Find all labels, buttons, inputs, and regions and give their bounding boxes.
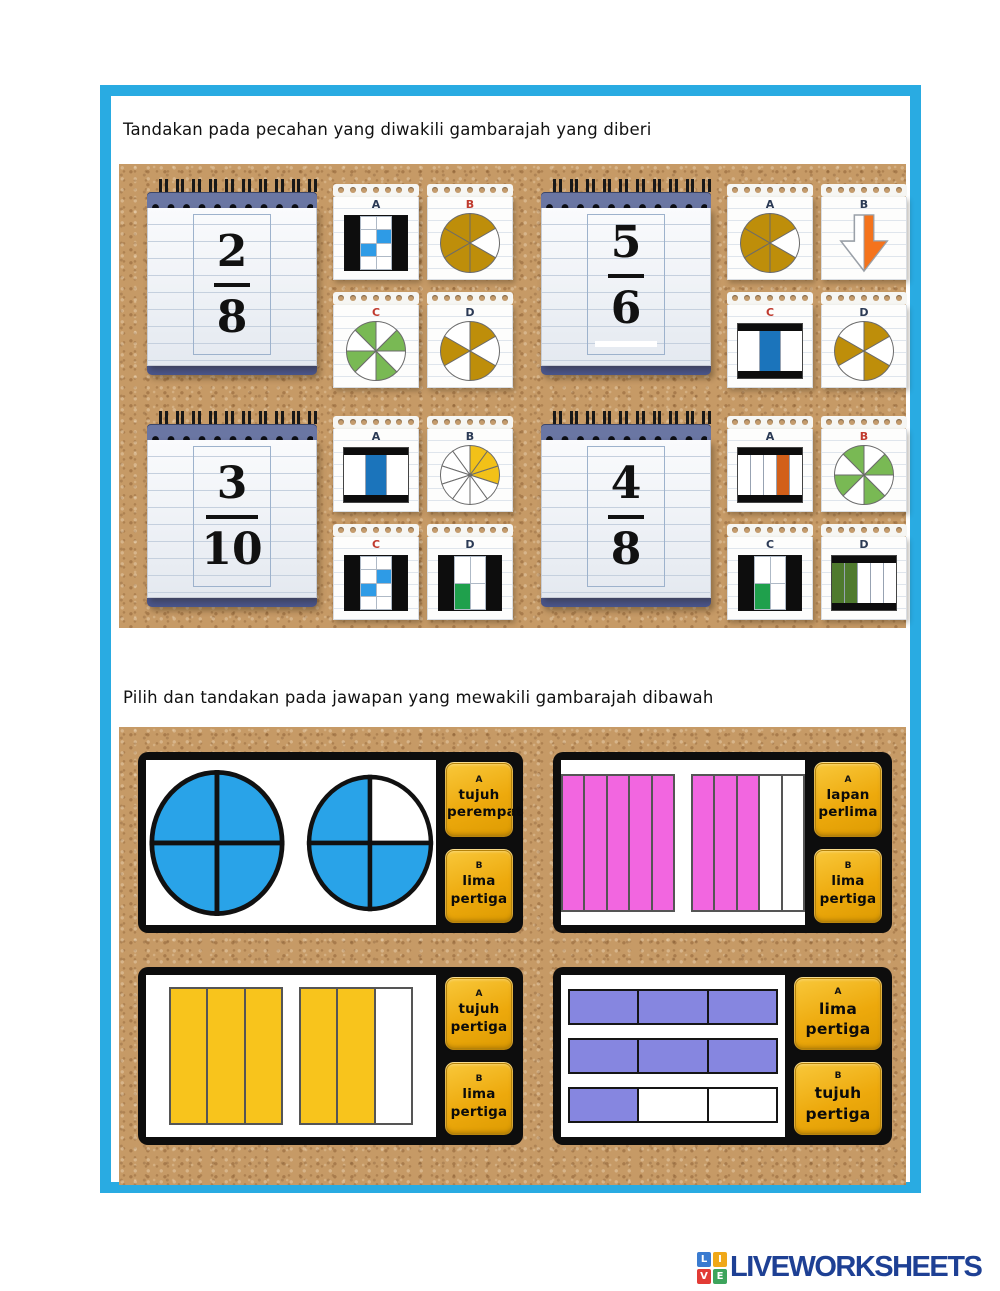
panel-1: A tujuh perempatB lima pertiga: [138, 752, 523, 933]
spiral-binding: [541, 410, 711, 424]
fraction-diagram: [334, 320, 418, 382]
option-card-D[interactable]: D: [821, 524, 907, 620]
option-letter: A: [728, 198, 812, 212]
option-card-body: D: [427, 305, 513, 388]
grid-diagram: [344, 215, 408, 271]
torn-edge-holes: [427, 292, 513, 305]
answer-letter: B: [796, 1071, 880, 1081]
torn-edge-holes: [427, 184, 513, 197]
strip-diagram: [561, 774, 675, 912]
torn-edge-holes: [727, 416, 813, 429]
question-1: 2 8 A B C D: [119, 164, 513, 396]
fraction-diagram: [334, 444, 418, 506]
option-card-body: A: [727, 197, 813, 280]
fraction-diagram: [428, 552, 512, 614]
fraction-denominator: 8: [611, 529, 642, 571]
option-card-body: C: [727, 305, 813, 388]
strip-diagram: [691, 774, 805, 912]
fraction-diagram: [428, 320, 512, 382]
corkboard-section2: A tujuh perempatB lima pertiga A lapan p…: [119, 727, 906, 1185]
option-letter: D: [428, 538, 512, 552]
option-letter: C: [334, 538, 418, 552]
fraction-diagram: [728, 552, 812, 614]
answer-button-A[interactable]: A lapan perlima: [812, 760, 884, 839]
answer-word: lima: [447, 1086, 511, 1104]
option-card-A[interactable]: A: [333, 416, 419, 512]
option-card-C[interactable]: C: [333, 524, 419, 620]
section2-title: Pilih dan tandakan pada jawapan yang mew…: [123, 688, 714, 707]
option-card-A[interactable]: A: [333, 184, 419, 280]
fraction-notepad: 2 8: [147, 178, 317, 396]
option-letter: C: [334, 306, 418, 320]
option-card-body: B: [821, 197, 907, 280]
answer-letter: B: [816, 861, 880, 871]
fraction-box: 3 10: [193, 446, 271, 587]
notepad-header: [147, 192, 317, 208]
answer-column: A tujuh pertigaB lima pertiga: [443, 975, 515, 1137]
notepad-paper: 2 8: [147, 208, 317, 366]
fraction-diagram: [428, 444, 512, 506]
option-letter: A: [334, 430, 418, 444]
fraction-numerator: 4: [611, 463, 642, 505]
option-letter: A: [334, 198, 418, 212]
panel-4: A lima pertigaB tujuh pertiga: [553, 967, 892, 1145]
diagram-area: [146, 760, 436, 925]
torn-edge-holes: [727, 524, 813, 537]
fraction-denominator: 10: [201, 529, 262, 571]
fraction-box: 2 8: [193, 214, 271, 355]
question-4: 4 8 A B C D: [513, 396, 907, 628]
answer-column: A lapan perlimaB lima pertiga: [812, 760, 884, 925]
torn-edge-holes: [821, 524, 907, 537]
answer-word: pertiga: [447, 891, 511, 909]
option-card-B[interactable]: B: [427, 184, 513, 280]
fraction-box: 4 8: [587, 446, 665, 587]
liveworksheets-logo: LIVE LIVEWORKSHEETS: [697, 1251, 981, 1284]
option-card-body: A: [333, 429, 419, 512]
fraction-box: 5 6: [587, 214, 665, 355]
option-letter: C: [728, 306, 812, 320]
answer-letter: A: [447, 989, 511, 999]
fraction-diagram: [822, 212, 906, 274]
answer-word: pertiga: [796, 1104, 880, 1124]
option-letter: B: [428, 198, 512, 212]
torn-edge-holes: [727, 292, 813, 305]
option-card-body: B: [427, 429, 513, 512]
fraction-diagram: [728, 444, 812, 506]
notepad-header: [541, 192, 711, 208]
option-card-B[interactable]: B: [427, 416, 513, 512]
pie-diagram: [439, 444, 501, 506]
fraction-numerator: 2: [217, 231, 248, 273]
answer-letter: A: [447, 775, 511, 785]
torn-edge-holes: [821, 184, 907, 197]
option-card-C[interactable]: C: [727, 292, 813, 388]
logo-tile-e: E: [713, 1269, 727, 1284]
answer-button-B[interactable]: B lima pertiga: [812, 847, 884, 926]
option-card-A[interactable]: A: [727, 184, 813, 280]
option-letter: B: [822, 430, 906, 444]
answer-letter: A: [796, 987, 880, 997]
option-card-B[interactable]: B: [821, 416, 907, 512]
notepad-footer: [147, 598, 317, 607]
option-letter: D: [428, 306, 512, 320]
answer-word: perlima: [816, 804, 880, 822]
torn-edge-holes: [333, 524, 419, 537]
pie-diagram: [833, 444, 895, 506]
option-letter: A: [728, 430, 812, 444]
option-card-body: A: [333, 197, 419, 280]
notepad-footer: [541, 598, 711, 607]
options-grid: A B C D: [333, 416, 513, 628]
option-letter: B: [822, 198, 906, 212]
torn-edge-holes: [333, 184, 419, 197]
bar-row: [568, 1038, 778, 1074]
option-card-body: D: [821, 305, 907, 388]
notepad-paper: 5 6: [541, 208, 711, 366]
options-grid: A B C D: [727, 416, 907, 628]
torn-edge-holes: [333, 292, 419, 305]
fraction-diagram: [334, 552, 418, 614]
answer-button-B[interactable]: B lima pertiga: [443, 847, 515, 926]
pie-diagram: [345, 320, 407, 382]
notepad-footer: [147, 366, 317, 375]
notepad-paper: 4 8: [541, 440, 711, 598]
notepad-header: [147, 424, 317, 440]
bar-diagram: [737, 447, 803, 503]
answer-column: A tujuh perempatB lima pertiga: [443, 760, 515, 925]
answer-word: tujuh: [447, 787, 511, 805]
option-card-body: C: [727, 537, 813, 620]
answer-letter: A: [816, 775, 880, 785]
diagram-area: [146, 975, 436, 1137]
bar-diagram: [343, 447, 409, 503]
option-card-B[interactable]: B: [821, 184, 907, 280]
torn-edge-holes: [427, 524, 513, 537]
answer-word: lima: [447, 873, 511, 891]
answer-word: tujuh: [447, 1001, 511, 1019]
option-card-body: C: [333, 537, 419, 620]
option-letter: D: [822, 306, 906, 320]
fraction-bar: [206, 515, 258, 519]
fraction-diagram: [728, 212, 812, 274]
option-card-D[interactable]: D: [821, 292, 907, 388]
logo-tile-i: I: [713, 1252, 727, 1267]
option-card-A[interactable]: A: [727, 416, 813, 512]
option-card-body: C: [333, 305, 419, 388]
liveworksheets-logo-icon: LIVE: [697, 1252, 727, 1284]
answer-button-B[interactable]: B tujuh pertiga: [792, 1060, 884, 1137]
answer-button-A[interactable]: A tujuh perempat: [443, 760, 515, 839]
answer-button-A[interactable]: A lima pertiga: [792, 975, 884, 1052]
fraction-diagram: [428, 212, 512, 274]
answer-word: perempat: [447, 804, 511, 822]
option-card-C[interactable]: C: [333, 292, 419, 388]
option-card-body: B: [821, 429, 907, 512]
brand-text: LIVEWORKSHEETS: [730, 1251, 981, 1284]
corkboard-section1: 2 8 A B C D: [119, 164, 906, 628]
notepad-paper: 3 10: [147, 440, 317, 598]
option-letter: D: [822, 538, 906, 552]
diagram-area: [561, 975, 785, 1137]
options-grid: A B C D: [727, 184, 907, 396]
fraction-bar: [214, 283, 250, 287]
answer-word: pertiga: [447, 1104, 511, 1122]
fraction-notepad: 5 6: [541, 178, 711, 396]
fraction-diagram: [822, 320, 906, 382]
fraction-bar: [608, 515, 644, 519]
answer-word: lapan: [816, 787, 880, 805]
torn-edge-holes: [821, 292, 907, 305]
fraction-diagram: [822, 444, 906, 506]
answer-word: tujuh: [796, 1083, 880, 1103]
strip-diagram: [299, 987, 413, 1125]
grid-diagram: [438, 555, 502, 611]
spiral-binding: [147, 178, 317, 192]
torn-edge-holes: [821, 416, 907, 429]
fraction-diagram: [728, 320, 812, 382]
option-card-body: D: [427, 537, 513, 620]
arrow-diagram: [836, 212, 892, 274]
question-2: 5 6 A B C: [513, 164, 907, 396]
option-card-body: B: [427, 197, 513, 280]
option-card-C[interactable]: C: [727, 524, 813, 620]
option-card-body: D: [821, 537, 907, 620]
fraction-denominator: 8: [217, 297, 248, 339]
pie-diagram: [833, 320, 895, 382]
answer-column: A lima pertigaB tujuh pertiga: [792, 975, 884, 1137]
fraction-notepad: 3 10: [147, 410, 317, 628]
bar-row: [568, 1087, 778, 1123]
answer-word: pertiga: [796, 1019, 880, 1039]
quartered-circle: [304, 769, 436, 917]
strip-diagram: [169, 987, 283, 1125]
bar-row: [568, 989, 778, 1025]
answer-word: lima: [796, 999, 880, 1019]
torn-edge-holes: [727, 184, 813, 197]
spiral-binding: [147, 410, 317, 424]
question-3: 3 10 A B C D: [119, 396, 513, 628]
fraction-bar: [608, 274, 644, 278]
fraction-denominator: 6: [611, 288, 642, 330]
fraction-diagram: [334, 212, 418, 274]
fraction-numerator: 3: [217, 463, 248, 505]
answer-word: pertiga: [816, 891, 880, 909]
answer-letter: B: [447, 861, 511, 871]
answer-word: lima: [816, 873, 880, 891]
logo-tile-l: L: [697, 1252, 711, 1267]
bar-diagram: [737, 323, 803, 379]
pie-diagram: [739, 212, 801, 274]
hbar-diagram: [568, 989, 778, 1123]
bar-diagram: [831, 555, 897, 611]
answer-button-B[interactable]: B lima pertiga: [443, 1060, 515, 1137]
quartered-circle: [146, 767, 288, 919]
logo-tile-v: V: [697, 1269, 711, 1284]
answer-underline: [595, 341, 657, 347]
option-letter: C: [728, 538, 812, 552]
torn-edge-holes: [427, 416, 513, 429]
fraction-diagram: [822, 552, 906, 614]
pie-diagram: [439, 320, 501, 382]
answer-word: pertiga: [447, 1019, 511, 1037]
grid-diagram: [738, 555, 802, 611]
option-letter: B: [428, 430, 512, 444]
notepad-header: [541, 424, 711, 440]
panel-3: A tujuh pertigaB lima pertiga: [138, 967, 523, 1145]
section1-title: Tandakan pada pecahan yang diwakili gamb…: [123, 120, 652, 139]
torn-edge-holes: [333, 416, 419, 429]
option-card-body: A: [727, 429, 813, 512]
diagram-area: [561, 760, 805, 925]
notepad-footer: [541, 366, 711, 375]
option-card-D[interactable]: D: [427, 524, 513, 620]
grid-diagram: [344, 555, 408, 611]
fraction-numerator: 5: [611, 222, 642, 264]
pie-diagram: [439, 212, 501, 274]
answer-button-A[interactable]: A tujuh pertiga: [443, 975, 515, 1052]
panel-2: A lapan perlimaB lima pertiga: [553, 752, 892, 933]
spiral-binding: [541, 178, 711, 192]
option-card-D[interactable]: D: [427, 292, 513, 388]
fraction-notepad: 4 8: [541, 410, 711, 628]
answer-letter: B: [447, 1074, 511, 1084]
options-grid: A B C D: [333, 184, 513, 396]
